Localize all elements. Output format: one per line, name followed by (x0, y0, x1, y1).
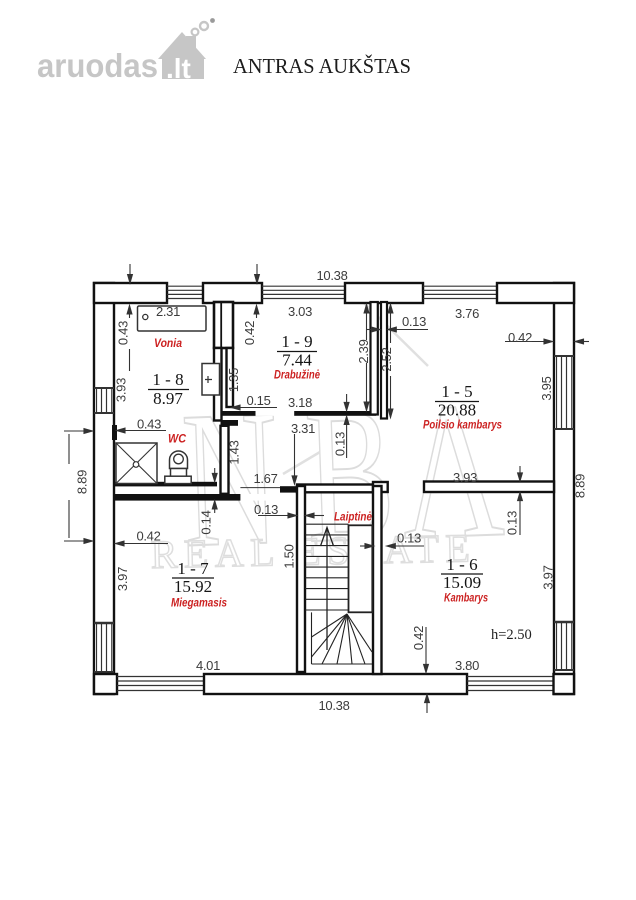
svg-text:1 - 8: 1 - 8 (152, 370, 183, 389)
svg-text:1 - 5: 1 - 5 (441, 382, 472, 401)
svg-text:1 - 9: 1 - 9 (281, 332, 312, 351)
svg-text:10.38: 10.38 (318, 698, 349, 713)
svg-text:3.97: 3.97 (540, 565, 555, 589)
svg-text:3.80: 3.80 (455, 658, 479, 673)
svg-text:ANTRAS AUKŠTAS: ANTRAS AUKŠTAS (233, 54, 411, 78)
svg-text:15.92: 15.92 (174, 577, 212, 596)
svg-text:3.97: 3.97 (115, 567, 130, 591)
svg-text:.lt: .lt (166, 53, 191, 84)
svg-text:15.09: 15.09 (443, 573, 481, 592)
svg-text:0.13: 0.13 (332, 432, 347, 456)
svg-text:8.89: 8.89 (572, 474, 587, 498)
svg-text:4.01: 4.01 (196, 658, 220, 673)
svg-text:1.67: 1.67 (253, 471, 277, 486)
svg-text:8.89: 8.89 (74, 470, 89, 494)
svg-text:3.76: 3.76 (455, 306, 479, 321)
svg-text:Vonia: Vonia (154, 336, 182, 350)
svg-text:0.13: 0.13 (504, 511, 519, 535)
svg-text:0.43: 0.43 (115, 321, 130, 345)
svg-text:1.35: 1.35 (226, 368, 241, 392)
svg-text:0.13: 0.13 (254, 502, 278, 517)
svg-text:3.31: 3.31 (291, 421, 315, 436)
svg-text:2.31: 2.31 (156, 304, 180, 319)
svg-text:0.42: 0.42 (508, 330, 532, 345)
svg-text:WC: WC (168, 432, 186, 446)
svg-text:1 - 6: 1 - 6 (446, 555, 477, 574)
svg-text:0.43: 0.43 (137, 417, 161, 432)
svg-text:3.95: 3.95 (539, 376, 554, 400)
svg-text:1 - 7: 1 - 7 (177, 559, 209, 578)
svg-text:3.18: 3.18 (288, 395, 312, 410)
svg-text:0.42: 0.42 (411, 626, 426, 650)
svg-text:0.14: 0.14 (198, 510, 213, 534)
svg-text:0.13: 0.13 (402, 314, 426, 329)
svg-text:Kambarys: Kambarys (444, 591, 488, 605)
svg-text:8.97: 8.97 (153, 389, 183, 408)
svg-text:3.03: 3.03 (288, 304, 312, 319)
svg-text:0.42: 0.42 (242, 321, 257, 345)
svg-text:3.93: 3.93 (453, 470, 477, 485)
svg-text:10.38: 10.38 (316, 268, 347, 283)
svg-text:0.42: 0.42 (136, 529, 160, 544)
svg-text:3.93: 3.93 (113, 378, 128, 402)
svg-text:1.43: 1.43 (226, 440, 241, 464)
svg-text:Laiptinė: Laiptinė (334, 510, 372, 524)
svg-text:2.52: 2.52 (379, 347, 394, 371)
svg-text:0.13: 0.13 (397, 531, 421, 546)
svg-text:h=2.50: h=2.50 (491, 627, 532, 643)
svg-text:Miegamasis: Miegamasis (171, 596, 227, 610)
svg-text:aruodas: aruodas (37, 47, 158, 84)
svg-text:Poilsio kambarys: Poilsio kambarys (423, 418, 502, 432)
svg-text:0.15: 0.15 (246, 393, 270, 408)
svg-text:1.50: 1.50 (281, 544, 296, 568)
svg-text:Drabužinė: Drabužinė (274, 368, 320, 382)
svg-text:2.39: 2.39 (356, 339, 371, 363)
